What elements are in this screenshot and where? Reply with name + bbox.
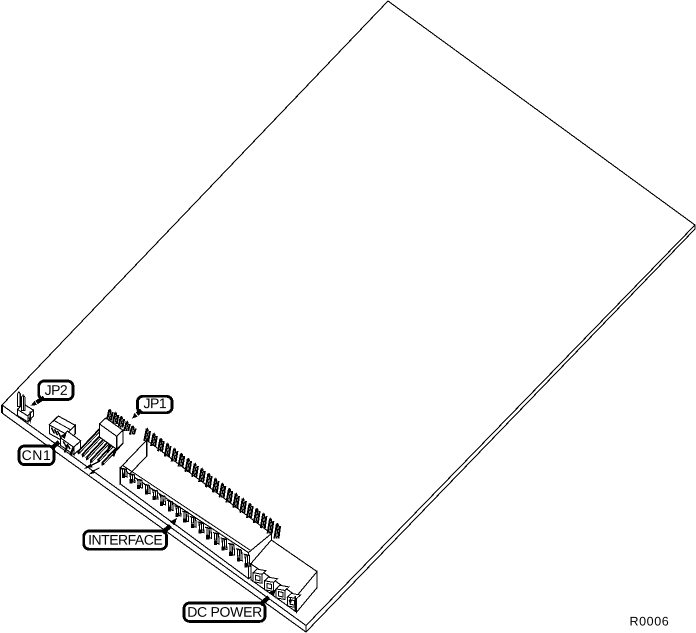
svg-text:JP2: JP2 [45,382,68,398]
svg-text:JP1: JP1 [143,395,166,411]
svg-text:R0006: R0006 [629,615,669,629]
svg-text:INTERFACE: INTERFACE [88,532,162,548]
svg-text:CN1: CN1 [22,447,52,463]
svg-text:DC POWER: DC POWER [187,604,262,620]
